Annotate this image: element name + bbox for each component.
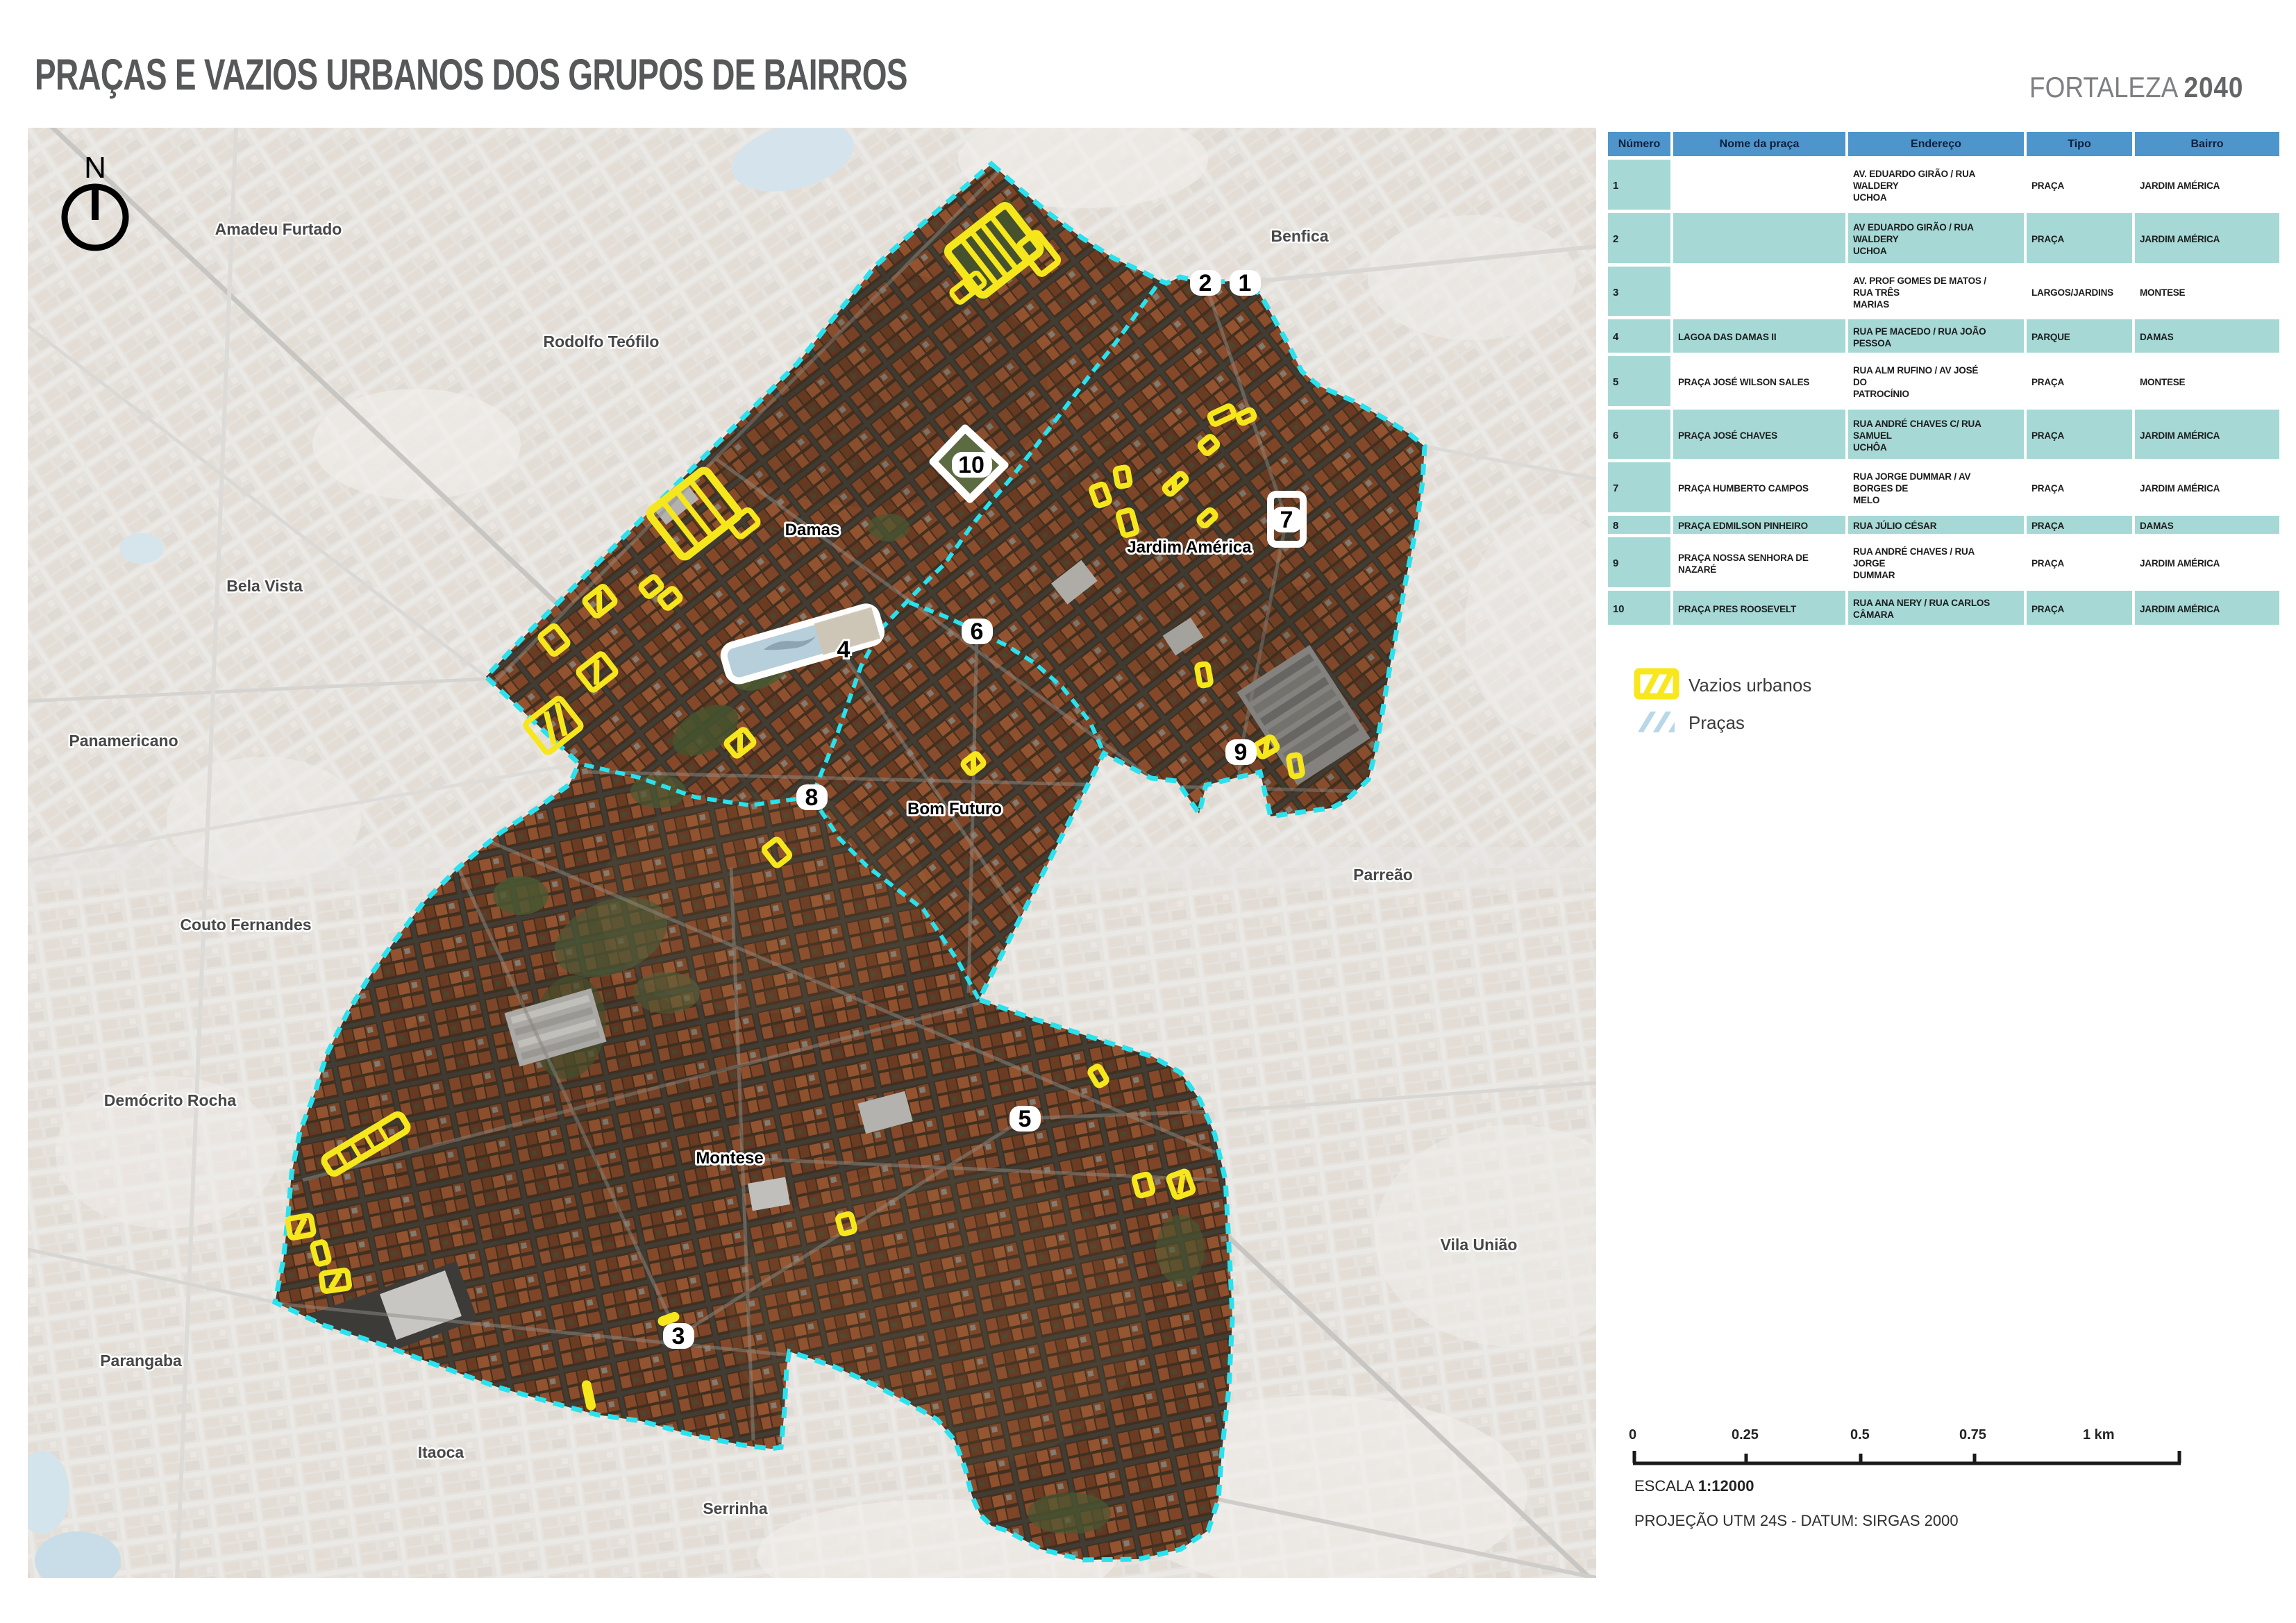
svg-text:Jardim América: Jardim América (1127, 538, 1252, 557)
svg-text:Rodolfo Teófilo: Rodolfo Teófilo (544, 333, 660, 351)
svg-text:Couto Fernandes: Couto Fernandes (180, 916, 311, 934)
svg-text:Serrinha: Serrinha (703, 1499, 768, 1517)
svg-text:Amadeu Furtado: Amadeu Furtado (215, 220, 342, 238)
svg-text:10: 10 (958, 452, 984, 478)
svg-text:Damas: Damas (785, 521, 840, 539)
svg-text:Vila União: Vila União (1441, 1236, 1518, 1254)
svg-text:Benfica: Benfica (1271, 227, 1328, 245)
svg-text:9: 9 (1234, 739, 1248, 766)
svg-text:Panamericano: Panamericano (69, 732, 178, 750)
svg-text:Montese: Montese (696, 1149, 763, 1168)
svg-text:8: 8 (805, 784, 819, 811)
svg-text:2: 2 (1199, 270, 1212, 296)
svg-text:4: 4 (837, 637, 850, 663)
svg-text:Demócrito Rocha: Demócrito Rocha (104, 1091, 237, 1109)
svg-text:Parangaba: Parangaba (100, 1352, 182, 1370)
svg-text:Itaoca: Itaoca (418, 1443, 464, 1461)
svg-text:Bela Vista: Bela Vista (226, 577, 303, 595)
svg-text:5: 5 (1019, 1106, 1032, 1132)
svg-text:N: N (84, 151, 106, 185)
svg-text:Bom Futuro: Bom Futuro (907, 800, 1002, 818)
svg-text:1: 1 (1239, 270, 1252, 296)
svg-text:Parreão: Parreão (1353, 866, 1413, 884)
svg-text:7: 7 (1280, 507, 1293, 533)
svg-text:6: 6 (971, 619, 984, 645)
svg-text:3: 3 (672, 1323, 685, 1349)
